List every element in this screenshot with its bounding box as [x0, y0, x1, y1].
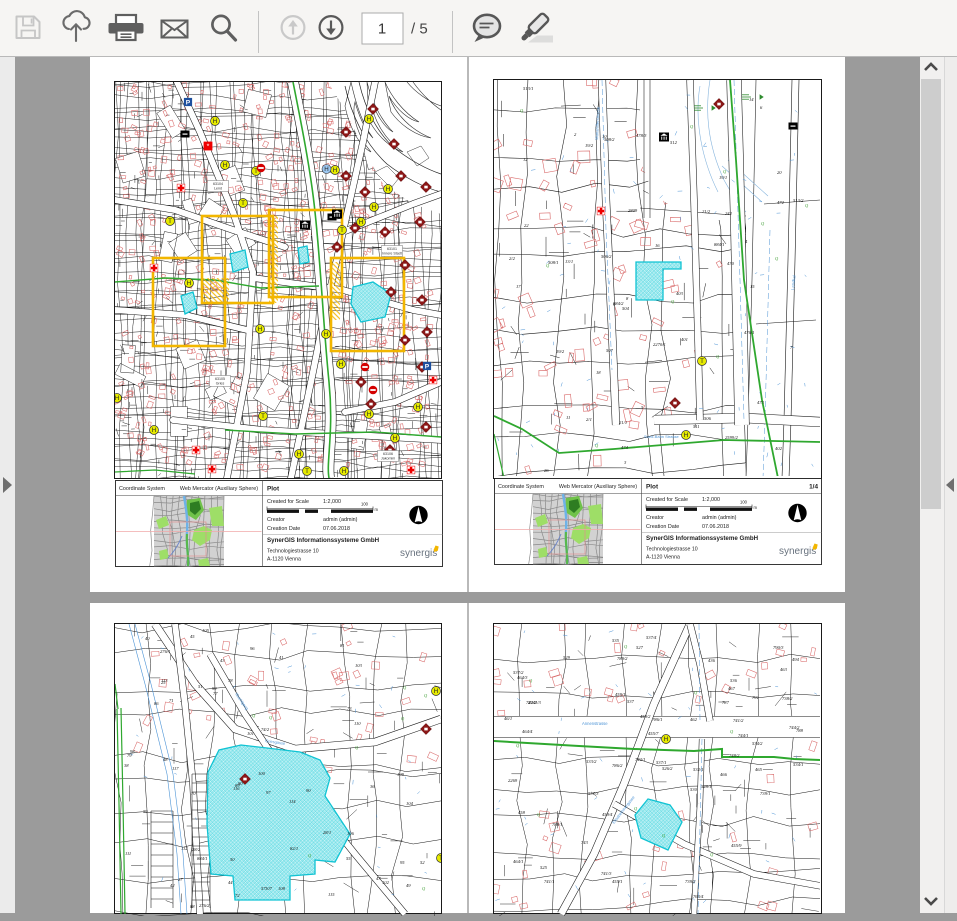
- svg-text:537/3: 537/3: [588, 791, 599, 796]
- svg-text:H: H: [664, 736, 668, 743]
- svg-text:47: 47: [376, 876, 381, 881]
- svg-text:Creation Date: Creation Date: [646, 524, 679, 530]
- svg-text:506: 506: [704, 416, 712, 421]
- svg-text:884/1: 884/1: [197, 856, 207, 861]
- svg-text:455/1: 455/1: [612, 879, 622, 884]
- svg-text:H: H: [393, 435, 397, 442]
- svg-text:463: 463: [780, 667, 788, 672]
- svg-text:T: T: [305, 468, 309, 475]
- svg-text:P: P: [186, 99, 191, 106]
- svg-text:738/2: 738/2: [782, 696, 793, 701]
- svg-text:27: 27: [178, 877, 183, 882]
- svg-text:455/7: 455/7: [648, 731, 659, 736]
- svg-text:104: 104: [406, 801, 414, 806]
- svg-text:synergis: synergis: [779, 546, 816, 557]
- svg-text:1:2,000: 1:2,000: [323, 499, 341, 505]
- svg-text:739/2: 739/2: [685, 879, 696, 884]
- svg-text:786/1: 786/1: [652, 717, 662, 722]
- svg-text:88: 88: [190, 904, 195, 909]
- svg-text:57: 57: [261, 886, 266, 891]
- svg-text:12: 12: [523, 157, 528, 162]
- svg-text:464/3: 464/3: [517, 675, 528, 680]
- svg-text:742/2: 742/2: [526, 700, 537, 705]
- svg-text:22: 22: [524, 223, 529, 228]
- svg-text:96: 96: [250, 646, 255, 651]
- svg-text:Innere Stadt: Innere Stadt: [382, 251, 402, 255]
- svg-text:2809: 2809: [628, 208, 638, 213]
- svg-text:40: 40: [145, 636, 150, 641]
- svg-text:44: 44: [228, 880, 233, 885]
- svg-text:T: T: [340, 227, 344, 234]
- svg-text:458: 458: [518, 810, 526, 815]
- svg-text:18: 18: [596, 370, 601, 375]
- svg-text:28/2: 28/2: [192, 847, 201, 852]
- svg-text:Creation Date: Creation Date: [267, 526, 300, 532]
- svg-text:506/2: 506/2: [601, 254, 612, 259]
- svg-text:T: T: [700, 358, 704, 365]
- svg-text:28/1: 28/1: [323, 830, 331, 835]
- svg-text:472: 472: [777, 200, 785, 205]
- svg-text:17: 17: [516, 284, 521, 289]
- svg-text:55: 55: [346, 856, 351, 861]
- svg-text:19/2: 19/2: [585, 143, 594, 148]
- svg-text:*: *: [207, 144, 210, 151]
- svg-text:T: T: [241, 200, 245, 207]
- svg-text:402: 402: [775, 446, 783, 451]
- svg-text:525: 525: [540, 865, 548, 870]
- svg-text:100: 100: [258, 771, 266, 776]
- svg-text:466: 466: [720, 772, 728, 777]
- svg-text:52: 52: [420, 860, 425, 865]
- svg-text:110: 110: [354, 721, 361, 726]
- svg-text:791: 791: [752, 695, 759, 700]
- svg-text:H: H: [684, 432, 688, 439]
- svg-text:10: 10: [602, 134, 607, 139]
- svg-text:401: 401: [681, 337, 688, 342]
- svg-text:511: 511: [693, 424, 700, 429]
- svg-text:513/2: 513/2: [793, 198, 804, 203]
- svg-text:m: m: [375, 507, 379, 512]
- svg-text:106: 106: [347, 831, 355, 836]
- svg-text:536: 536: [730, 678, 738, 683]
- svg-text:07.06.2018: 07.06.2018: [323, 526, 350, 532]
- svg-text:H: H: [367, 411, 371, 418]
- svg-text:42: 42: [170, 883, 175, 888]
- svg-text:78: 78: [228, 678, 233, 683]
- svg-text:Lend: Lend: [214, 186, 222, 190]
- svg-text:m: m: [754, 505, 758, 510]
- svg-text:H: H: [339, 361, 343, 368]
- svg-text:494: 494: [792, 657, 800, 662]
- svg-text:528/1: 528/1: [701, 784, 711, 789]
- svg-text:70: 70: [191, 791, 196, 796]
- svg-text:50: 50: [230, 857, 235, 862]
- svg-text:512: 512: [670, 140, 678, 145]
- svg-text:Creator: Creator: [267, 517, 285, 523]
- svg-text:741/2: 741/2: [733, 718, 744, 723]
- svg-text:459/4: 459/4: [602, 812, 613, 817]
- svg-text:507: 507: [606, 348, 614, 353]
- svg-text:743: 743: [581, 840, 589, 845]
- svg-text:455/9: 455/9: [731, 843, 742, 848]
- svg-text:744/2: 744/2: [789, 725, 800, 730]
- svg-text:534/2: 534/2: [752, 741, 763, 746]
- svg-text:H: H: [416, 404, 420, 411]
- svg-text:537/4: 537/4: [646, 635, 657, 640]
- svg-text:admin (admin): admin (admin): [323, 517, 358, 523]
- svg-text:Technologiestrasse 10: Technologiestrasse 10: [646, 547, 698, 553]
- svg-text:63105: 63105: [215, 377, 225, 381]
- svg-text:884/1: 884/1: [714, 242, 724, 247]
- svg-text:462: 462: [690, 717, 698, 722]
- svg-text:38: 38: [124, 763, 129, 768]
- svg-text:Web Mercator (Auxiliary Sphere: Web Mercator (Auxiliary Sphere): [559, 484, 637, 490]
- svg-text:112: 112: [181, 846, 188, 851]
- svg-text:46/1: 46/1: [504, 716, 512, 721]
- svg-text:48: 48: [163, 757, 168, 762]
- svg-text:H: H: [333, 167, 337, 174]
- svg-text:95: 95: [400, 860, 405, 865]
- svg-text:739/1: 739/1: [760, 791, 770, 796]
- svg-text:H: H: [115, 395, 119, 402]
- svg-text:787: 787: [722, 700, 730, 705]
- svg-text:467: 467: [728, 686, 736, 691]
- svg-text:470: 470: [727, 261, 735, 266]
- svg-text:H: H: [386, 186, 390, 193]
- svg-text:537/1: 537/1: [656, 760, 666, 765]
- svg-text:59: 59: [143, 809, 148, 814]
- svg-text:Coordinate System: Coordinate System: [498, 484, 544, 490]
- svg-text:07.06.2018: 07.06.2018: [702, 524, 729, 530]
- svg-text:H: H: [213, 118, 217, 125]
- svg-text:464/4: 464/4: [522, 729, 533, 734]
- svg-text:744/1: 744/1: [738, 733, 748, 738]
- svg-text:Jakomini: Jakomini: [381, 456, 395, 460]
- svg-text:748/2: 748/2: [729, 753, 740, 758]
- svg-text:41: 41: [279, 655, 284, 660]
- svg-text:103: 103: [355, 663, 363, 668]
- svg-text:535: 535: [612, 638, 620, 643]
- svg-text:T: T: [168, 218, 172, 225]
- svg-text:1: 1: [378, 21, 386, 38]
- svg-text:19/1: 19/1: [719, 175, 727, 180]
- svg-text:529: 529: [563, 655, 571, 660]
- svg-text:20: 20: [777, 170, 782, 175]
- svg-text:111: 111: [125, 851, 131, 856]
- svg-text:513/1: 513/1: [523, 86, 533, 91]
- svg-text:2270/1: 2270/1: [653, 342, 666, 347]
- svg-text:45: 45: [190, 634, 195, 639]
- svg-text:276/2: 276/2: [199, 903, 210, 908]
- svg-text:1:2,000: 1:2,000: [702, 497, 720, 503]
- svg-text:H: H: [258, 326, 262, 333]
- svg-text:H: H: [367, 116, 371, 123]
- svg-text:admin (admin): admin (admin): [702, 515, 737, 521]
- svg-text:534/1: 534/1: [793, 762, 803, 767]
- svg-text:2/2: 2/2: [509, 256, 516, 261]
- svg-text:21/1: 21/1: [619, 420, 627, 425]
- svg-text:14: 14: [749, 97, 754, 102]
- svg-text:15: 15: [750, 284, 755, 289]
- svg-text:100: 100: [740, 500, 748, 505]
- svg-text:115: 115: [328, 892, 335, 897]
- svg-text:Created for Scale: Created for Scale: [267, 499, 309, 505]
- svg-text:508/1: 508/1: [548, 260, 558, 265]
- svg-text:SynerGIS Informationssysteme G: SynerGIS Informationssysteme GmbH: [646, 535, 759, 542]
- svg-text:276/1: 276/1: [160, 649, 170, 654]
- svg-text:51: 51: [198, 684, 203, 689]
- svg-text:90: 90: [306, 788, 311, 793]
- svg-text:2/1: 2/1: [586, 417, 592, 422]
- svg-text:SynerGIS Informationssysteme G: SynerGIS Informationssysteme GmbH: [267, 537, 380, 544]
- svg-text:63101: 63101: [387, 247, 397, 251]
- svg-text:459/2: 459/2: [640, 714, 651, 719]
- svg-text:77: 77: [213, 691, 218, 696]
- svg-text:Technologiestrasse 10: Technologiestrasse 10: [267, 549, 319, 555]
- svg-text:114: 114: [289, 799, 296, 804]
- svg-text:100: 100: [361, 502, 369, 507]
- svg-text:H: H: [297, 451, 301, 458]
- svg-text:109: 109: [397, 772, 405, 777]
- svg-text:79: 79: [127, 753, 132, 758]
- svg-text:H: H: [152, 427, 156, 434]
- svg-text:537: 537: [627, 699, 635, 704]
- svg-text:504: 504: [622, 306, 630, 311]
- svg-text:H: H: [324, 331, 328, 338]
- svg-text:530: 530: [690, 787, 698, 792]
- svg-text:436: 436: [708, 658, 716, 663]
- svg-text:532/1: 532/1: [693, 767, 703, 772]
- svg-text:2599/2: 2599/2: [725, 435, 738, 440]
- svg-text:403: 403: [676, 291, 684, 296]
- svg-text:107: 107: [265, 886, 273, 891]
- svg-text:H: H: [342, 468, 346, 475]
- svg-text:Creator: Creator: [646, 515, 664, 521]
- svg-text:741/1: 741/1: [544, 879, 554, 884]
- svg-text:476/1: 476/1: [744, 330, 754, 335]
- svg-text:102: 102: [382, 880, 390, 885]
- svg-text:86: 86: [154, 701, 159, 706]
- svg-text:72: 72: [235, 893, 240, 898]
- svg-text:A-1120 Vienna: A-1120 Vienna: [267, 557, 301, 563]
- svg-text:474: 474: [621, 445, 629, 450]
- svg-text:H: H: [434, 688, 438, 695]
- svg-text:11: 11: [566, 415, 570, 420]
- svg-text:21/2: 21/2: [702, 209, 711, 214]
- svg-text:36: 36: [370, 784, 375, 789]
- svg-text:Web Mercator (Auxiliary Sphere: Web Mercator (Auxiliary Sphere): [180, 486, 258, 492]
- svg-text:Plot: Plot: [267, 486, 280, 493]
- svg-text:97: 97: [266, 790, 271, 795]
- svg-text:117: 117: [172, 766, 179, 771]
- svg-text:43: 43: [220, 658, 225, 663]
- svg-text:108: 108: [278, 886, 286, 891]
- svg-text:T: T: [261, 413, 265, 420]
- svg-text:49: 49: [406, 883, 411, 888]
- svg-text:P: P: [425, 363, 430, 370]
- svg-text:786/2: 786/2: [612, 763, 623, 768]
- svg-text:2269: 2269: [508, 778, 518, 783]
- svg-text:16: 16: [655, 243, 660, 248]
- svg-text:Coordinate System: Coordinate System: [119, 486, 165, 492]
- svg-text:19/2: 19/2: [556, 349, 565, 354]
- svg-text:790/3: 790/3: [773, 645, 784, 650]
- svg-text:H: H: [359, 219, 363, 226]
- svg-text:A-1120 Vienna: A-1120 Vienna: [646, 555, 680, 561]
- svg-text:763/4: 763/4: [693, 894, 704, 899]
- svg-text:742/1: 742/1: [635, 757, 645, 762]
- svg-text:82/1: 82/1: [290, 846, 298, 851]
- svg-text:527: 527: [636, 645, 644, 650]
- svg-text:101: 101: [247, 731, 254, 736]
- svg-text:synergis: synergis: [400, 548, 437, 559]
- svg-text:H: H: [324, 166, 328, 173]
- svg-text:H: H: [223, 162, 227, 169]
- svg-text:63106: 63106: [383, 452, 393, 456]
- svg-text:242: 242: [725, 211, 733, 216]
- svg-text:478/3: 478/3: [636, 133, 647, 138]
- svg-text:473: 473: [757, 400, 765, 405]
- svg-text:105: 105: [202, 628, 210, 633]
- svg-text:Sued-Bahn Strasse: Sued-Bahn Strasse: [644, 434, 679, 439]
- svg-text:H: H: [372, 204, 376, 211]
- svg-text:H: H: [187, 280, 191, 287]
- svg-text:526/2: 526/2: [662, 766, 673, 771]
- svg-text:789/2: 789/2: [617, 656, 628, 661]
- svg-text:884/2: 884/2: [613, 301, 624, 306]
- svg-text:741/3: 741/3: [601, 871, 612, 876]
- svg-text:13/1: 13/1: [565, 259, 573, 264]
- svg-text:Plot: Plot: [646, 484, 659, 491]
- svg-text:533/2: 533/2: [586, 759, 597, 764]
- svg-text:63104: 63104: [213, 182, 223, 186]
- svg-text:/ 5: / 5: [411, 21, 428, 38]
- svg-text:464/1: 464/1: [513, 859, 523, 864]
- svg-text:459/1: 459/1: [615, 692, 625, 697]
- svg-text:1/4: 1/4: [809, 484, 818, 491]
- svg-text:74/2: 74/2: [261, 727, 270, 732]
- svg-text:465: 465: [755, 767, 763, 772]
- svg-text:Gries: Gries: [216, 381, 225, 385]
- svg-text:71: 71: [169, 698, 174, 703]
- svg-text:788/1: 788/1: [552, 822, 562, 827]
- svg-text:81: 81: [340, 643, 345, 648]
- svg-text:113: 113: [161, 678, 168, 683]
- svg-text:26: 26: [544, 468, 549, 473]
- svg-text:Created for Scale: Created for Scale: [646, 497, 688, 503]
- svg-text:73: 73: [347, 706, 352, 711]
- svg-text:Annenstrasse: Annenstrasse: [582, 721, 608, 726]
